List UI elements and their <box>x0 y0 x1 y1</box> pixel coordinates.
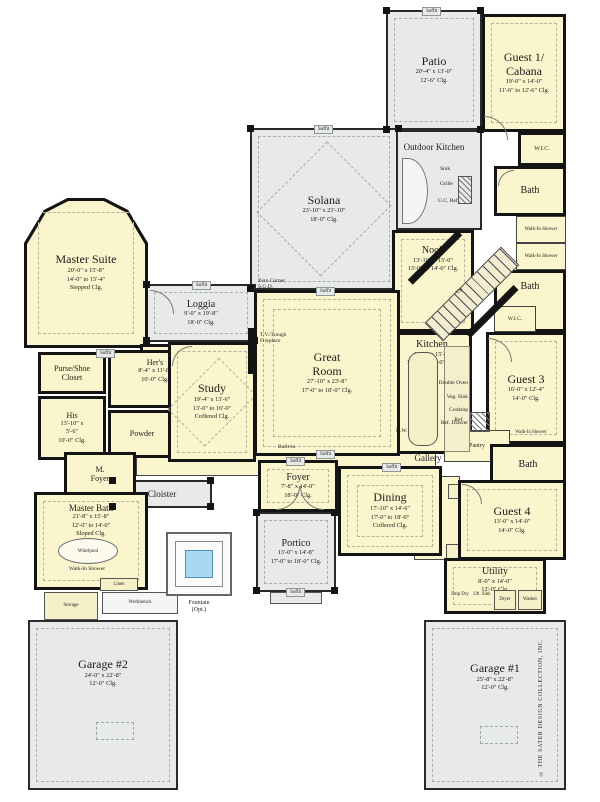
column-post <box>109 503 116 510</box>
fountain-water <box>185 550 213 578</box>
fireplace <box>248 328 256 374</box>
m-foyer-label-group: M. Foyer <box>67 455 133 493</box>
guest1-label-group: Guest 1/ Cabana 19'-0" x 14'-0" 11'-6" t… <box>485 17 563 129</box>
study-clg2: Coffered Clg. <box>195 413 230 422</box>
soffit-tag: Soffit <box>316 287 335 296</box>
room-guest1-cabana: Guest 1/ Cabana 19'-0" x 14'-0" 11'-6" t… <box>482 14 566 132</box>
garage2-clg: 12'-0" Clg. <box>89 680 117 689</box>
garage1-dim: 25'-8" x 22'-8" <box>477 676 514 685</box>
guest1-label: Guest 1/ <box>504 51 544 65</box>
soffit-tag: Soffit <box>382 463 401 472</box>
portico-clg: 17'-0" to 18'-0" Clg. <box>271 558 322 567</box>
cloister-label: Cloister <box>148 489 177 499</box>
powder-label-group: Powder <box>111 413 173 455</box>
stair-treads <box>425 247 520 342</box>
study-dim: 19'-4" x 13'-6" <box>194 396 231 405</box>
soffit-tag: Soffit <box>286 457 305 466</box>
dining-dim: 17'-10" x 14'-6" <box>370 505 410 514</box>
fountain-label-line1: Fountain <box>188 600 209 606</box>
zero-corner-line1: Zero Corner <box>258 278 285 284</box>
ref-label: Ref. <box>448 417 470 423</box>
column-post <box>477 126 484 133</box>
washer: Washer <box>518 590 542 610</box>
zero-corner-line2: S.G.D. <box>258 284 273 290</box>
great-room-label-group: Great Room 27'-10" x 23'-8" 17'-0" to 18… <box>257 293 397 453</box>
soffit-tag: Soffit <box>422 7 441 16</box>
solana-dim: 23'-10" x 23'-10" <box>302 207 345 216</box>
solana-label-group: Solana 23'-10" x 23'-10" 18'-0" Clg. <box>252 130 396 288</box>
guest4-clg: 14'-0" Clg. <box>498 527 526 536</box>
loggia-clg: 18'-0" Clg. <box>187 319 215 328</box>
dining-label-group: Dining 17'-10" x 14'-6" 17'-0" to 18'-0"… <box>341 469 439 553</box>
room-his-closet: His 13'-10" x 5'-6" 10'-0" Clg. <box>38 396 106 460</box>
patio-clg: 12'-6" Clg. <box>420 77 448 86</box>
column-post <box>247 285 254 292</box>
portico-dim: 13'-0" x 14'-8" <box>278 549 315 558</box>
fountain-label: Fountain (Opt.) <box>166 600 232 614</box>
guest3-dim: 16'-0" x 12'-4" <box>508 386 545 395</box>
room-patio: Patio 20'-4" x 13'-0" 12'-6" Clg. <box>386 10 482 130</box>
guest1-clg: 11'-6" to 12'-6" Clg. <box>499 87 550 96</box>
ceiling-diamond-line <box>168 358 257 447</box>
dining-clg1: 17'-0" to 18'-0" <box>371 514 410 523</box>
soffit-tag: Soffit <box>316 450 335 459</box>
ceiling-line <box>394 18 474 122</box>
ceiling-line <box>36 628 170 782</box>
his-dim2: 5'-6" <box>66 428 78 437</box>
bath3-shower-label: Walk-In Shower <box>506 430 556 436</box>
loggia-label: Loggia <box>187 299 215 311</box>
equipment-outline <box>480 726 518 744</box>
bath3-label-group: Bath <box>493 447 563 483</box>
guest1-dim: 19'-0" x 14'-0" <box>506 78 543 87</box>
ceiling-line <box>258 136 390 282</box>
room-garage-1: Garage #1 25'-8" x 22'-8" 12'-0" Clg. <box>424 620 566 790</box>
column-post <box>143 281 150 288</box>
garage1-label: Garage #1 <box>470 662 520 676</box>
grille-label: Grille <box>440 181 470 187</box>
hers-clg: 10'-0" Clg. <box>141 376 169 385</box>
room-portico: Portico 13'-0" x 14'-8" 17'-0" to 18'-0"… <box>256 512 336 592</box>
zero-corner-label: Zero Corner S.G.D. <box>258 278 312 291</box>
purse-shoe-label: Purse/Shoe <box>54 364 90 373</box>
fireplace-label: T.V./Trough Fireplace <box>260 332 302 345</box>
shower-a-label: Walk-In Shower <box>525 227 558 233</box>
equipment-outline <box>96 722 134 740</box>
wic1-label-group: W.I.C. <box>521 135 563 163</box>
sink-label: Sink <box>440 166 470 172</box>
foyer-label: Foyer <box>286 472 309 484</box>
drip-dry-label: Drip Dry <box>448 592 472 598</box>
ref-box <box>470 412 490 432</box>
utility-dim: 8'-0" x 14'-0" <box>478 578 512 587</box>
loggia-dim: 9'-0" x 19'-8" <box>184 310 218 319</box>
patio-label: Patio <box>422 55 447 69</box>
wic1-label: W.I.C. <box>534 146 550 153</box>
powder-label: Powder <box>130 429 154 438</box>
solana-label: Solana <box>308 194 341 208</box>
uc-ref-label: U.C. Ref. <box>438 198 462 204</box>
ceiling-line-2 <box>273 309 381 437</box>
guest4-dim: 13'-0" x 14'-0" <box>494 518 531 527</box>
his-label: His <box>66 411 77 420</box>
study-clg1: 13'-0" to 16'-0" <box>193 405 232 414</box>
ceiling-line <box>264 520 328 584</box>
veg-sink-label: Veg. Sink <box>428 394 468 400</box>
bath3-label: Bath <box>519 459 538 471</box>
bath2-label: Bath <box>521 281 540 293</box>
room-walkin-shower-a: Walk-In Shower <box>516 216 566 243</box>
room-master-suite: Master Suite 20'-0" x 15'-8" 14'-0" to 1… <box>24 198 148 348</box>
guest3-clg: 14'-0" Clg. <box>512 395 540 404</box>
purse-shoe-label-group: Purse/Shoe Closet <box>41 355 103 391</box>
study-label: Study <box>198 382 226 396</box>
utl-sink-label: Utl. Sink <box>470 592 494 598</box>
hers-dim: 8'-4" x 11'-8" <box>138 367 171 376</box>
garage2-dim: 24'-0" x 22'-8" <box>85 672 122 681</box>
soffit-tag: Soffit <box>286 588 305 597</box>
fireplace-label-line2: Fireplace <box>260 338 280 344</box>
m-foyer-label: M. <box>95 465 104 474</box>
built-in-label: Built-in <box>278 444 318 450</box>
shower-b-label-group: Walk-In Shower <box>517 244 565 269</box>
storage: Storage <box>44 592 98 620</box>
dining-label: Dining <box>373 491 406 505</box>
cooktop-label: Cooktop <box>428 407 468 413</box>
room-walkin-shower-b: Walk-In Shower <box>516 243 566 270</box>
hers-label: Her's <box>147 358 164 367</box>
column-post <box>247 125 254 132</box>
portico-label-group: Portico 13'-0" x 14'-8" 17'-0" to 18'-0"… <box>258 514 334 590</box>
great-room-label2: Room <box>312 365 341 379</box>
dryer: Dryer <box>494 590 516 610</box>
ceiling-line <box>347 475 433 547</box>
column-post <box>383 126 390 133</box>
staircase: Up <box>426 248 518 340</box>
column-post <box>395 125 402 132</box>
shower-b-label: Walk-In Shower <box>525 254 558 260</box>
garage2-label-group: Garage #2 24'-0" x 22'-8" 12'-0" Clg. <box>30 622 176 788</box>
his-clg: 10'-0" Clg. <box>58 437 86 446</box>
soffit-tag: Soffit <box>192 281 211 290</box>
master-suite-floor <box>27 201 145 345</box>
bath1-label: Bath <box>521 185 540 197</box>
soffit-tag: Soffit <box>314 125 333 134</box>
fireplace-label-line1: T.V./Trough <box>260 332 287 338</box>
master-bath-label: Master Bath <box>69 503 113 513</box>
column-post <box>331 587 338 594</box>
dining-clg2: Coffered Clg. <box>373 522 408 531</box>
column-post <box>143 337 150 344</box>
whirlpool-tub: Whirlpool <box>58 538 118 564</box>
room-dining: Dining 17'-10" x 14'-6" 17'-0" to 18'-0"… <box>338 466 442 556</box>
washer-label: Washer <box>523 597 537 602</box>
garage2-label: Garage #2 <box>78 658 128 672</box>
utility-label: Utility <box>482 566 508 578</box>
column-post <box>331 509 338 516</box>
his-label-group: His 13'-10" x 5'-6" 10'-0" Clg. <box>41 399 103 457</box>
column-post <box>253 587 260 594</box>
column-post <box>207 503 214 510</box>
ceiling-line <box>263 299 391 447</box>
room-purse-shoe-closet: Purse/Shoe Closet <box>38 352 106 394</box>
column-post <box>109 477 116 484</box>
column-post <box>253 509 260 516</box>
great-room-dim: 27'-10" x 23'-8" <box>307 378 347 387</box>
column-post <box>477 7 484 14</box>
floor-plan: Patio 20'-4" x 13'-0" 12'-6" Clg. Outdoo… <box>0 0 600 802</box>
ceiling-line-2 <box>357 485 423 537</box>
dw-label: D.W. <box>396 428 418 434</box>
designer-credit: © THE SATER DESIGN COLLECTION, INC. <box>538 620 544 776</box>
solana-clg: 18'-0" Clg. <box>310 216 338 225</box>
master-bath-clg1: 12'-0" to 14'-0" <box>72 522 111 531</box>
room-wic-1: W.I.C. <box>518 132 566 166</box>
workbench-label: Workbench <box>129 600 152 606</box>
master-bath-dim: 21'-8" x 15'-8" <box>73 513 110 522</box>
column-post <box>383 7 390 14</box>
linen-closet-2: Linen <box>100 578 138 591</box>
his-dim1: 13'-10" x <box>60 420 83 429</box>
garage1-clg: 12'-0" Clg. <box>481 684 509 693</box>
ceiling-line <box>177 351 247 453</box>
soffit-tag: Soffit <box>96 349 115 358</box>
pantry-label: Pantry <box>469 443 485 450</box>
dryer-label: Dryer <box>499 597 510 602</box>
m-foyer-label2: Foyer <box>91 474 110 483</box>
shower-a-label-group: Walk-In Shower <box>517 217 565 242</box>
fountain-label-line2: (Opt.) <box>192 607 207 613</box>
outdoor-kitchen-label: Outdoor Kitchen <box>404 142 465 152</box>
ceiling-line <box>491 23 557 123</box>
column-post <box>207 477 214 484</box>
linen2-label: Linen <box>113 582 124 587</box>
master-shower-label: Walk-In Shower <box>62 566 112 572</box>
guest4-label: Guest 4 <box>494 505 531 519</box>
room-great-room: Great Room 27'-10" x 23'-8" 17'-0" to 18… <box>254 290 400 456</box>
room-master-foyer: M. Foyer <box>64 452 136 496</box>
purse-shoe-label2: Closet <box>62 373 82 382</box>
great-room-label: Great <box>314 351 341 365</box>
patio-label-group: Patio 20'-4" x 13'-0" 12'-6" Clg. <box>388 12 480 128</box>
room-powder: Powder <box>108 410 176 458</box>
whirlpool-label: Whirlpool <box>78 549 99 554</box>
double-oven-label: Double Oven <box>428 380 468 386</box>
portico-label: Portico <box>282 538 311 550</box>
great-room-clg: 17'-0" to 18'-0" Clg. <box>302 387 353 396</box>
column-post <box>251 337 258 344</box>
room-solana: Solana 23'-10" x 23'-10" 18'-0" Clg. <box>250 128 398 290</box>
ceiling-diamond-line <box>256 141 391 276</box>
guest3-label: Guest 3 <box>508 373 545 387</box>
fountain <box>166 532 232 596</box>
storage-label: Storage <box>63 603 78 609</box>
room-garage-2: Garage #2 24'-0" x 22'-8" 12'-0" Clg. <box>28 620 178 790</box>
guest1-label2: Cabana <box>506 65 542 79</box>
patio-dim: 20'-4" x 13'-0" <box>416 68 453 77</box>
